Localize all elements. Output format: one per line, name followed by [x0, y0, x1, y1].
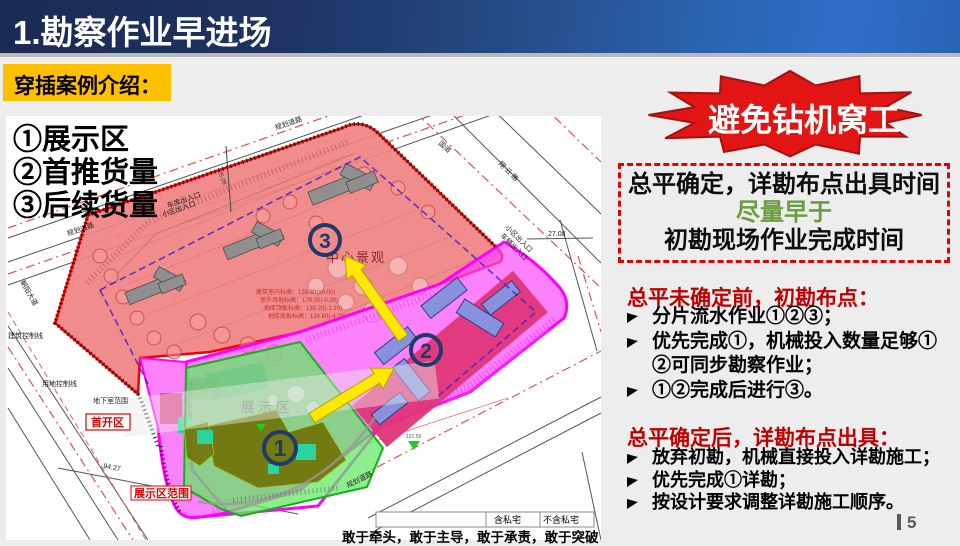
svg-text:27.08: 27.08	[548, 231, 566, 238]
svg-text:用地控制线: 用地控制线	[42, 379, 77, 388]
svg-text:2: 2	[420, 340, 432, 363]
svg-text:展示区范围: 展示区范围	[133, 486, 189, 500]
svg-text:地下室范围: 地下室范围	[93, 396, 128, 405]
svg-text:地库顶板标高：138.20(-1.10): 地库顶板标高：138.20(-1.10)	[264, 304, 342, 312]
svg-text:规划道路: 规划道路	[274, 116, 303, 132]
svg-text:不含私宅: 不含私宅	[543, 514, 579, 525]
svg-text:1: 1	[274, 435, 287, 461]
svg-text:3: 3	[319, 230, 331, 253]
svg-text:建筑控制线: 建筑控制线	[8, 331, 43, 340]
svg-text:首开区: 首开区	[91, 415, 124, 429]
svg-text:朝阳大道: 朝阳大道	[18, 279, 40, 308]
svg-text:翔 云 路: 翔 云 路	[497, 159, 521, 183]
svg-text:含私宅: 含私宅	[494, 514, 521, 525]
svg-text:室外场地标高：179.00(-0.30): 室外场地标高：179.00(-0.30)	[260, 296, 338, 304]
svg-text:建筑室内标高：128.30(±0.00): 建筑室内标高：128.30(±0.00)	[256, 288, 335, 296]
svg-text:121.59: 121.59	[406, 434, 422, 440]
svg-text:94.27: 94.27	[103, 463, 122, 473]
svg-text:国道: 国道	[437, 139, 453, 155]
